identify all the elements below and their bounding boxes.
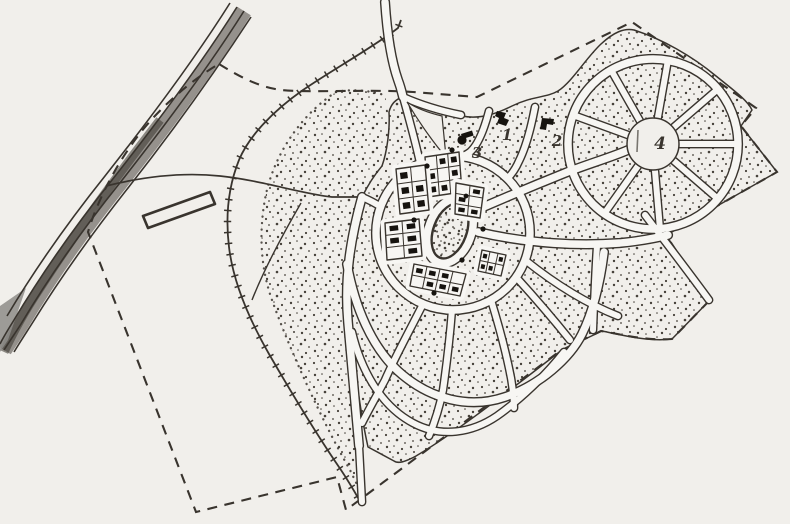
parcel-block [455,183,484,218]
area-label-1: 1 [502,126,512,144]
town-plan-map: 3 1 2 4 [0,0,790,524]
house-mark [389,225,398,231]
railway-tick [225,243,232,244]
house-mark [439,158,445,164]
house-mark [452,170,458,176]
parcel-block [478,250,506,276]
house-mark [390,237,399,243]
house-mark [441,185,447,191]
railway-tick [225,199,232,200]
plaza-pen-mark [637,130,638,152]
circular-plaza [627,118,679,170]
parcel-block [385,219,422,260]
area-label-3: 3 [472,144,482,162]
area-label-2: 2 [551,132,562,150]
house-mark [408,248,417,254]
house-mark [400,172,408,179]
railway-tick [224,210,231,211]
parcel-block [410,264,466,296]
house-mark [401,187,409,194]
town-plan-figure: 3 1 2 4 [0,0,790,524]
house-mark [407,235,416,241]
parcel-block [396,165,429,214]
house-mark [406,223,415,229]
area-label-4: 4 [654,134,666,154]
house-mark [403,202,411,209]
house-mark [451,156,457,162]
house-mark [417,200,425,207]
house-mark [416,185,424,192]
